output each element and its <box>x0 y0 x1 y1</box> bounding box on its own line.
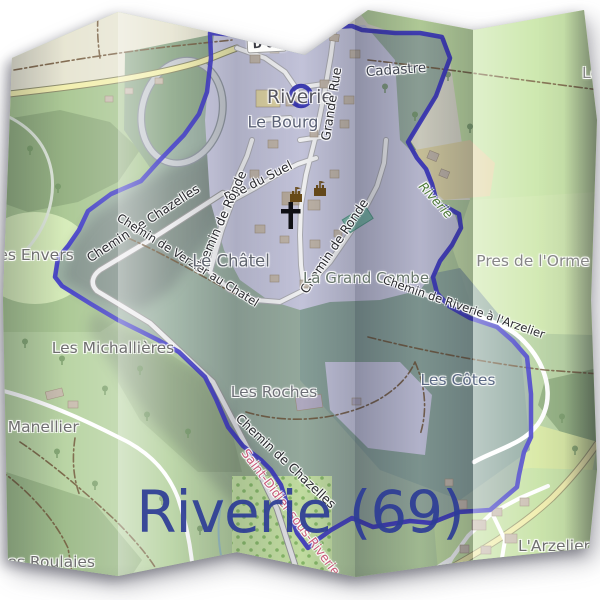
label-le-bourg: Le Bourg <box>248 113 319 132</box>
poster-title: Riverie (69) <box>136 478 464 546</box>
label-le-manellier: e Manellier <box>0 418 79 436</box>
label-le-chatel: Le Châtel <box>192 252 270 271</box>
label-les-michallieres: Les Michallières <box>52 339 175 357</box>
paper-shadow-wrap: D 63 Riverie Le Bourg Cadastre Grande Ru… <box>0 0 600 600</box>
label-les-envers: es Envers <box>0 246 74 264</box>
label-pres-de-lorme: Pres de l'Orme <box>476 252 589 270</box>
label-les-roches: Les Roches <box>231 383 317 401</box>
map-poster: D 63 Riverie Le Bourg Cadastre Grande Ru… <box>0 0 600 600</box>
label-larzelier: L'Arzelier <box>518 537 590 555</box>
road-ref-shield-d63: D 63 <box>246 34 287 53</box>
label-les-cotes: Les Côtes <box>421 371 496 389</box>
map-canvas[interactable]: D 63 Riverie Le Bourg Cadastre Grande Ru… <box>0 0 600 600</box>
label-le-partial: Le <box>582 64 600 82</box>
label-les-roulaies: Les Roulaies <box>0 553 95 571</box>
